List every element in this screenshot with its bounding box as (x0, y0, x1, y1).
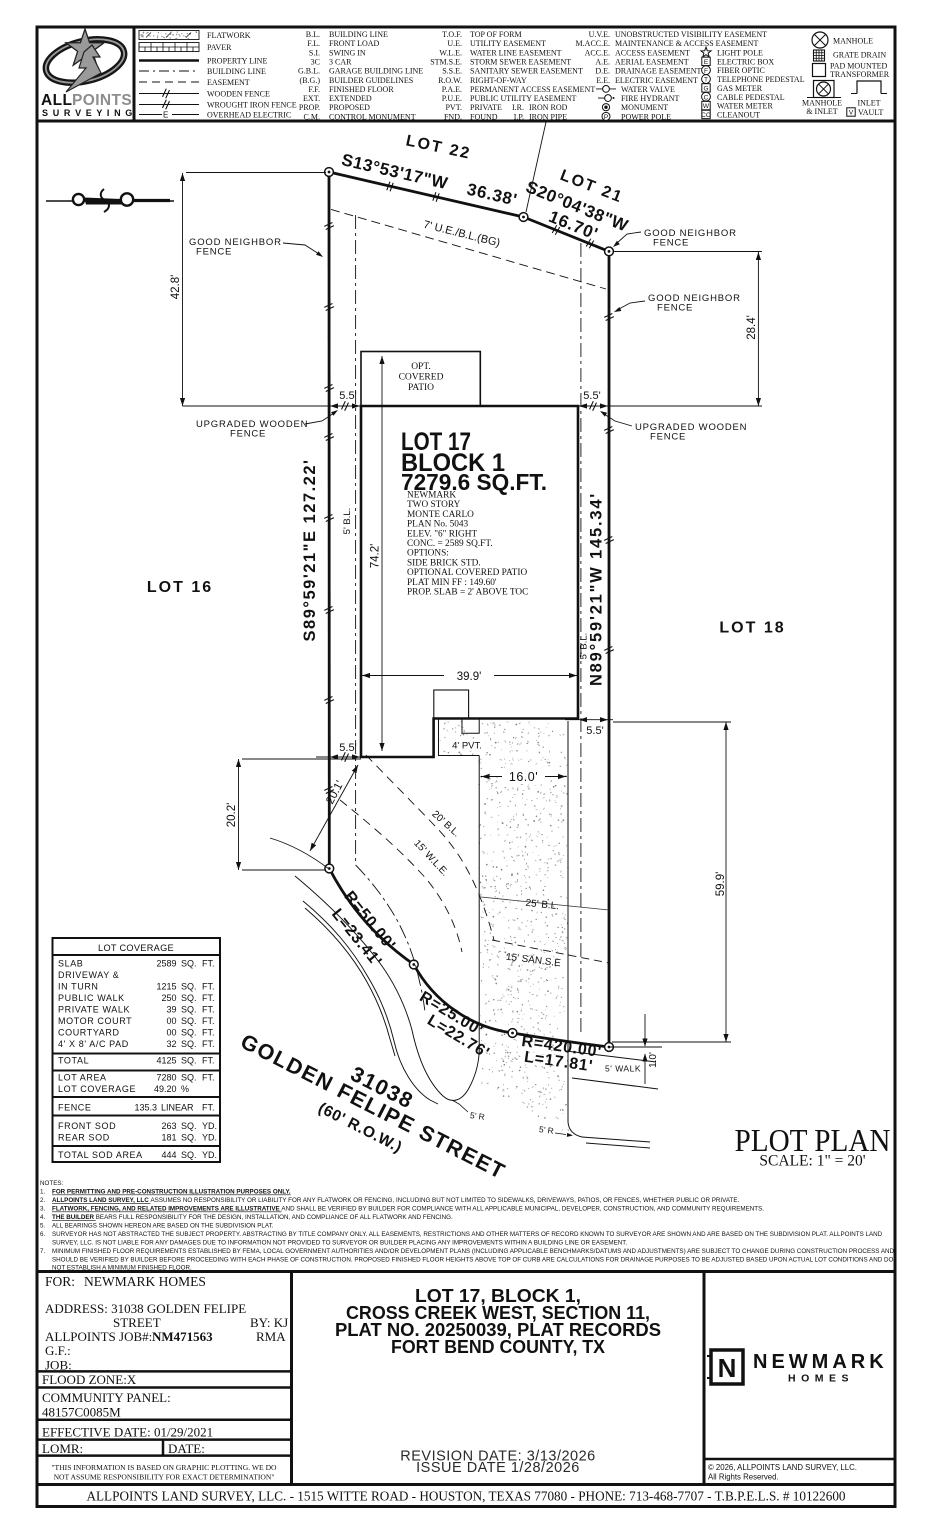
svg-text:FENCE: FENCE (196, 247, 232, 258)
svg-text:U.V.E.: U.V.E. (589, 30, 610, 39)
svg-text:IN TURN: IN TURN (58, 982, 99, 992)
svg-text:5.5': 5.5' (339, 390, 356, 402)
svg-text:ALLPOINTS LAND SURVEY, LLC. -: ALLPOINTS LAND SURVEY, LLC. - 1515 WITTE… (86, 1489, 845, 1504)
svg-text:PLAT MIN FF : 149.60': PLAT MIN FF : 149.60' (407, 578, 497, 588)
svg-text:C: C (704, 94, 709, 101)
svg-text:16.0': 16.0' (509, 770, 538, 784)
svg-text:BUILDING LINE: BUILDING LINE (207, 67, 266, 76)
svg-text:EASEMENT: EASEMENT (207, 78, 250, 87)
svg-text:49.20: 49.20 (154, 1084, 177, 1094)
svg-text:STM.S.E.: STM.S.E. (430, 57, 462, 66)
svg-text:ALL: ALL (41, 92, 72, 109)
svg-text:PUBLIC WALK: PUBLIC WALK (58, 993, 125, 1003)
svg-text:UNOBSTRUCTED VISIBILITY EASEME: UNOBSTRUCTED VISIBILITY EASEMENT (615, 30, 767, 39)
svg-text:CABLE PEDESTAL: CABLE PEDESTAL (717, 93, 785, 102)
svg-text:BUILDER GUIDELINES: BUILDER GUIDELINES (329, 76, 413, 85)
svg-text:48157C0085M: 48157C0085M (42, 1405, 121, 1420)
svg-text:I.P.: I.P. (514, 112, 524, 121)
svg-text:WATER LINE EASEMENT: WATER LINE EASEMENT (470, 48, 562, 57)
svg-text:LOT 18: LOT 18 (719, 620, 785, 637)
svg-text:4' X 8' A/C PAD: 4' X 8' A/C PAD (58, 1039, 129, 1049)
svg-text:FT.: FT. (202, 1016, 215, 1026)
svg-text:EXT.: EXT. (303, 94, 320, 103)
svg-text:7' U.E./B.L.(BG): 7' U.E./B.L.(BG) (422, 219, 501, 250)
svg-text:444: 444 (161, 1150, 176, 1160)
svg-text:TOTAL SOD AREA: TOTAL SOD AREA (58, 1150, 143, 1160)
svg-text:GRATE DRAIN: GRATE DRAIN (833, 51, 886, 60)
svg-text:LOT COVERAGE: LOT COVERAGE (58, 1084, 136, 1094)
svg-text:SCALE: 1" = 20': SCALE: 1" = 20' (759, 1153, 865, 1170)
svg-text:U.E.: U.E. (447, 39, 462, 48)
svg-text:74.2': 74.2' (370, 544, 382, 569)
svg-text:5' R: 5' R (538, 1124, 554, 1136)
svg-text:DRIVEWAY &: DRIVEWAY & (58, 970, 119, 980)
svg-text:All Rights Reserved.: All Rights Reserved. (708, 1473, 779, 1482)
svg-text:PRIVATE WALK: PRIVATE WALK (58, 1005, 130, 1015)
svg-text:GAS METER: GAS METER (717, 84, 763, 93)
svg-text:FT.: FT. (202, 1028, 215, 1038)
svg-text:W.L.E.: W.L.E. (439, 48, 462, 57)
svg-text:S U R V E Y I N G: S U R V E Y I N G (42, 108, 133, 118)
svg-text:1.: 1. (40, 1189, 45, 1196)
svg-text:FND.: FND. (444, 112, 462, 121)
svg-text:WROUGHT IRON FENCE: WROUGHT IRON FENCE (207, 101, 297, 110)
svg-text:FENCE: FENCE (657, 303, 693, 314)
svg-text:FT.: FT. (202, 1005, 215, 1015)
svg-text:32: 32 (166, 1039, 176, 1049)
svg-text:7280: 7280 (156, 1073, 176, 1083)
svg-text:P: P (604, 114, 608, 121)
svg-text:%: % (181, 1084, 189, 1094)
svg-text:FIRE HYDRANT: FIRE HYDRANT (621, 94, 680, 103)
svg-text:5.: 5. (40, 1223, 45, 1230)
svg-text:SQ.: SQ. (181, 1056, 197, 1066)
svg-text:FLOOD ZONE:X: FLOOD ZONE:X (42, 1372, 137, 1387)
svg-text:3C: 3C (311, 57, 320, 66)
svg-text:F.L.: F.L. (307, 39, 320, 48)
svg-text:E: E (163, 111, 168, 120)
svg-text:SQ.: SQ. (181, 1121, 197, 1131)
svg-text:59.9': 59.9' (715, 872, 727, 897)
svg-text:1215: 1215 (156, 982, 176, 992)
svg-text:25' B.L.: 25' B.L. (525, 898, 560, 912)
svg-text:S89°59'21"E 127.22': S89°59'21"E 127.22' (301, 459, 319, 642)
svg-text:TWO STORY: TWO STORY (407, 500, 461, 510)
svg-text:1.0': 1.0' (648, 1052, 659, 1068)
svg-text:4125: 4125 (156, 1056, 176, 1066)
svg-text:CONTROL MONUMENT: CONTROL MONUMENT (329, 112, 416, 121)
svg-text:SQ.: SQ. (181, 1005, 197, 1015)
svg-text:CONC. = 2589 SQ.FT.: CONC. = 2589 SQ.FT. (407, 539, 493, 549)
svg-text:SIDE BRICK STD.: SIDE BRICK STD. (407, 558, 481, 568)
svg-text:WOODEN FENCE: WOODEN FENCE (207, 90, 270, 99)
svg-text:DATE:: DATE: (168, 1441, 205, 1456)
svg-text:FT.: FT. (202, 1073, 215, 1083)
svg-text:FLATWORK, FENCING, AND RELATED: FLATWORK, FENCING, AND RELATED IMPROVEME… (52, 1206, 764, 1213)
svg-text:181: 181 (161, 1133, 176, 1143)
svg-text:7.: 7. (40, 1248, 45, 1255)
svg-text:MONUMENT: MONUMENT (621, 103, 668, 112)
svg-text:IRON PIPE: IRON PIPE (529, 112, 567, 121)
svg-text:FINISHED FLOOR: FINISHED FLOOR (329, 85, 394, 94)
svg-text:STREET: STREET (113, 1315, 161, 1330)
svg-text:OPT.: OPT. (411, 362, 431, 372)
svg-text:EXTENDED: EXTENDED (329, 94, 372, 103)
svg-text:(B.G.): (B.G.) (300, 76, 321, 85)
svg-text:MOTOR COURT: MOTOR COURT (58, 1016, 132, 1026)
svg-text:OVERHEAD ELECTRIC: OVERHEAD ELECTRIC (207, 111, 291, 120)
svg-text:OPTIONS:: OPTIONS: (407, 549, 449, 559)
svg-text:NEWMARK HOMES: NEWMARK HOMES (84, 1274, 206, 1289)
svg-text:SANITARY SEWER EASEMENT: SANITARY SEWER EASEMENT (470, 67, 583, 76)
svg-text:REAR SOD: REAR SOD (58, 1133, 110, 1143)
svg-text:R.O.W.: R.O.W. (438, 76, 462, 85)
svg-text:RMA: RMA (256, 1329, 286, 1344)
svg-text:FENCE: FENCE (230, 429, 266, 440)
svg-text:IRON ROD: IRON ROD (529, 103, 568, 112)
svg-text:ALLPOINTS JOB#:: ALLPOINTS JOB#: (45, 1329, 152, 1344)
svg-text:5.5': 5.5' (586, 725, 603, 737)
svg-text:ELECTRIC EASEMENT: ELECTRIC EASEMENT (615, 76, 698, 85)
svg-text:WATER VALVE: WATER VALVE (621, 85, 675, 94)
svg-text:ALLPOINTS LAND SURVEY, LLC ASS: ALLPOINTS LAND SURVEY, LLC ASSUMES NO RE… (52, 1197, 740, 1204)
svg-text:PROPERTY LINE: PROPERTY LINE (207, 57, 267, 66)
svg-text:SQ.: SQ. (181, 959, 197, 969)
svg-text:DRAINAGE EASEMENT: DRAINAGE EASEMENT (615, 67, 702, 76)
svg-text:FOUND: FOUND (470, 112, 498, 121)
svg-text:MINIMUM FINISHED FLOOR REQUIRE: MINIMUM FINISHED FLOOR REQUIREMENTS ESTA… (52, 1248, 895, 1255)
svg-text:FORT BEND COUNTY, TX: FORT BEND COUNTY, TX (391, 1337, 605, 1357)
svg-text:LINEAR: LINEAR (161, 1103, 194, 1113)
svg-text:PUBLIC UTILITY EASEMENT: PUBLIC UTILITY EASEMENT (470, 94, 576, 103)
svg-text:ELEV. "6" RIGHT: ELEV. "6" RIGHT (407, 529, 477, 539)
svg-text:PERMANENT ACCESS EASEMENT: PERMANENT ACCESS EASEMENT (470, 85, 595, 94)
svg-text:ELECTRIC BOX: ELECTRIC BOX (717, 57, 774, 66)
svg-text:INLET: INLET (857, 99, 880, 108)
svg-text:T: T (704, 77, 708, 84)
svg-text:NEWMARK: NEWMARK (753, 1351, 888, 1373)
svg-text:20.2': 20.2' (226, 803, 238, 828)
svg-text:ISSUE DATE 1/28/2026: ISSUE DATE 1/28/2026 (416, 1460, 580, 1476)
svg-text:F.F.: F.F. (308, 85, 320, 94)
svg-text:00: 00 (166, 1028, 176, 1038)
svg-text:SQ.: SQ. (181, 1073, 197, 1083)
svg-text:FENCE: FENCE (58, 1103, 92, 1113)
svg-text:& INLET: & INLET (806, 107, 837, 116)
svg-text:N89°59'21"W 145.34': N89°59'21"W 145.34' (588, 492, 606, 686)
svg-text:LOT COVERAGE: LOT COVERAGE (98, 943, 174, 953)
svg-text:3.: 3. (40, 1206, 45, 1213)
svg-text:LOT AREA: LOT AREA (58, 1073, 107, 1083)
svg-text:UTILITY EASEMENT: UTILITY EASEMENT (470, 39, 546, 48)
svg-text:FT.: FT. (202, 959, 215, 969)
svg-text:FOR:: FOR: (45, 1274, 75, 1289)
svg-text:FT.: FT. (202, 993, 215, 1003)
svg-text:CO: CO (701, 112, 711, 119)
svg-text:E.E.: E.E. (596, 76, 610, 85)
svg-text:PATIO: PATIO (408, 383, 434, 393)
svg-text:SQ.: SQ. (181, 1150, 197, 1160)
svg-text:LOT 22: LOT 22 (404, 132, 472, 162)
svg-text:OPTIONAL COVERED PATIO: OPTIONAL COVERED PATIO (407, 568, 527, 578)
svg-text:P.U.E.: P.U.E. (442, 94, 462, 103)
svg-text:FT.: FT. (202, 1056, 215, 1066)
svg-text:C.M.: C.M. (304, 112, 320, 121)
svg-text:G.B.L.: G.B.L. (298, 67, 320, 76)
svg-text:NOTES:: NOTES: (40, 1180, 64, 1187)
svg-text:PAVER: PAVER (207, 43, 232, 52)
svg-text:FT.: FT. (202, 1039, 215, 1049)
svg-text:BY: KJ: BY: KJ (250, 1315, 288, 1330)
svg-text:FRONT LOAD: FRONT LOAD (329, 39, 380, 48)
svg-text:CLEANOUT: CLEANOUT (717, 110, 760, 119)
svg-text:MAINTENANCE & ACCESS EASEMENT: MAINTENANCE & ACCESS EASEMENT (615, 39, 758, 48)
svg-text:42.8': 42.8' (170, 275, 182, 300)
svg-text:M.ACC.E.: M.ACC.E. (576, 39, 610, 48)
svg-text:SQ.: SQ. (181, 1028, 197, 1038)
svg-text:135.3: 135.3 (134, 1103, 157, 1113)
svg-text:N: N (718, 1353, 737, 1383)
svg-text:JOB:: JOB: (45, 1358, 72, 1373)
svg-text:POWER POLE: POWER POLE (621, 112, 671, 121)
svg-text:COURTYARD: COURTYARD (58, 1028, 120, 1038)
svg-text:NEWMARK: NEWMARK (407, 491, 456, 501)
svg-text:YD.: YD. (202, 1121, 217, 1131)
svg-text:TOP OF FORM: TOP OF FORM (470, 30, 522, 39)
svg-text:F: F (704, 68, 708, 75)
svg-text:FIBER OPTIC: FIBER OPTIC (717, 66, 765, 75)
svg-text:PVT.: PVT. (445, 103, 462, 112)
svg-text:MANHOLE: MANHOLE (833, 37, 873, 46)
svg-text:FENCE: FENCE (650, 432, 686, 443)
svg-text:3 CAR: 3 CAR (329, 57, 352, 66)
svg-text:I.R.: I.R. (512, 103, 524, 112)
svg-text:COMMUNITY PANEL:: COMMUNITY PANEL: (42, 1390, 171, 1405)
svg-text:SQ.: SQ. (181, 1016, 197, 1026)
svg-text:GARAGE BUILDING LINE: GARAGE BUILDING LINE (329, 67, 423, 76)
svg-text:39.9': 39.9' (457, 671, 482, 683)
svg-text:TELEPHONE PEDESTAL: TELEPHONE PEDESTAL (717, 75, 805, 84)
svg-text:A.E.: A.E. (595, 57, 610, 66)
svg-text:NOT ASSUME RESPONSIBILITY FOR: NOT ASSUME RESPONSIBILITY FOR EXACT DETE… (54, 1473, 275, 1482)
svg-text:5' WALK: 5' WALK (605, 1064, 641, 1074)
svg-text:SQ.: SQ. (181, 993, 197, 1003)
svg-text:5.5': 5.5' (339, 742, 356, 754)
svg-text:"THIS INFORMATION IS BASED ON: "THIS INFORMATION IS BASED ON GRAPHIC PL… (51, 1463, 277, 1472)
svg-text:ADDRESS: 31038 GOLDEN FELIPE: ADDRESS: 31038 GOLDEN FELIPE (45, 1301, 246, 1316)
svg-text:G: G (703, 86, 708, 93)
svg-text:5' B.L.: 5' B.L. (342, 508, 353, 535)
svg-text:LIGHT POLE: LIGHT POLE (717, 49, 763, 58)
svg-text:2589: 2589 (156, 959, 176, 969)
svg-text:4' PVT.: 4' PVT. (452, 741, 482, 752)
svg-text:S.I.: S.I. (309, 48, 320, 57)
svg-text:263: 263 (161, 1121, 176, 1131)
svg-text:W: W (703, 103, 710, 110)
svg-text:YD.: YD. (202, 1150, 217, 1160)
svg-text:BUILDING LINE: BUILDING LINE (329, 30, 388, 39)
svg-text:VAULT: VAULT (858, 108, 883, 117)
svg-text:G.F.:: G.F.: (45, 1343, 71, 1358)
svg-text:LOT 16: LOT 16 (147, 579, 213, 596)
svg-text:SURVEYOR HAS NOT ABSTRACTED TH: SURVEYOR HAS NOT ABSTRACTED THE SUBJECT … (52, 1231, 883, 1238)
svg-text:2.: 2. (40, 1197, 45, 1204)
svg-text:FRONT SOD: FRONT SOD (58, 1121, 116, 1131)
svg-text:T.O.F.: T.O.F. (442, 30, 462, 39)
svg-text:© 2026, ALLPOINTS LAND SURVEY,: © 2026, ALLPOINTS LAND SURVEY, LLC. (708, 1463, 857, 1472)
svg-text:ACC.E.: ACC.E. (585, 48, 610, 57)
svg-text:SURVEY, LLC. IS NOT LIABLE FOR: SURVEY, LLC. IS NOT LIABLE FOR ANY DAMAG… (52, 1240, 627, 1247)
svg-text:39: 39 (166, 1005, 176, 1015)
svg-text:SQ.: SQ. (181, 1133, 197, 1143)
svg-text:P.A.E.: P.A.E. (442, 85, 462, 94)
svg-text:THE BUILDER BEARS FULL RESPONS: THE BUILDER BEARS FULL RESPONSIBILITY FO… (52, 1214, 453, 1221)
svg-text:B.L.: B.L. (306, 30, 320, 39)
svg-text:FLATWORK: FLATWORK (207, 31, 251, 40)
svg-text:SQ.: SQ. (181, 982, 197, 992)
svg-text:MONTE CARLO: MONTE CARLO (407, 510, 474, 520)
svg-text:FOR PERMITTING AND PRE-CONSTRU: FOR PERMITTING AND PRE-CONSTRUCTION ILLU… (52, 1189, 291, 1196)
svg-text:5' R: 5' R (469, 1110, 485, 1122)
svg-text:PLAN No. 5043: PLAN No. 5043 (407, 520, 469, 530)
svg-text:WATER METER: WATER METER (717, 102, 773, 111)
svg-text:SLAB: SLAB (58, 959, 83, 969)
svg-text:ACCESS EASEMENT: ACCESS EASEMENT (615, 48, 690, 57)
svg-text:RIGHT-OF-WAY: RIGHT-OF-WAY (470, 76, 527, 85)
svg-text:00: 00 (166, 1016, 176, 1026)
svg-text:PROPOSED: PROPOSED (329, 103, 370, 112)
svg-text:TOTAL: TOTAL (58, 1056, 89, 1066)
svg-text:LOMR:: LOMR: (42, 1441, 83, 1456)
svg-text:STORM SEWER EASEMENT: STORM SEWER EASEMENT (470, 57, 571, 66)
svg-text:PROP. SLAB = 2' ABOVE TOC: PROP. SLAB = 2' ABOVE TOC (407, 588, 528, 598)
svg-text:6.: 6. (40, 1231, 45, 1238)
svg-text:SWING IN: SWING IN (329, 48, 366, 57)
svg-text:15' W.L.E.: 15' W.L.E. (411, 838, 450, 879)
svg-text:EFFECTIVE DATE: 01/29/2021: EFFECTIVE DATE: 01/29/2021 (42, 1425, 213, 1440)
svg-text:E: E (704, 59, 709, 66)
svg-text:5.5': 5.5' (583, 390, 600, 402)
svg-text:SHOULD BE VERIFIED BY BUILDER: SHOULD BE VERIFIED BY BUILDER BEFORE PRO… (52, 1257, 893, 1264)
svg-text:PRIVATE: PRIVATE (470, 103, 502, 112)
svg-text:28.4': 28.4' (746, 315, 758, 340)
svg-text:S.S.E.: S.S.E. (442, 67, 462, 76)
svg-text:NM471563: NM471563 (152, 1329, 213, 1344)
svg-text:SQ.: SQ. (181, 1039, 197, 1049)
svg-text:TRANSFORMER: TRANSFORMER (830, 70, 890, 79)
svg-text:4.: 4. (40, 1214, 45, 1221)
svg-text:HOMES: HOMES (788, 1373, 854, 1385)
svg-text:COVERED: COVERED (399, 373, 444, 383)
svg-text:POINTS: POINTS (72, 92, 132, 109)
svg-text:ALL BEARINGS SHOWN HEREON ARE: ALL BEARINGS SHOWN HEREON ARE BASED ON T… (52, 1223, 274, 1230)
svg-text:D.E.: D.E. (595, 67, 610, 76)
svg-text:YD.: YD. (202, 1133, 217, 1143)
svg-text:FT.: FT. (202, 1103, 215, 1113)
svg-text:FENCE: FENCE (653, 238, 689, 249)
svg-text:AERIAL EASEMENT: AERIAL EASEMENT (615, 57, 689, 66)
svg-text:15' SAN.S.E: 15' SAN.S.E (505, 952, 562, 970)
svg-text:20' B.L.: 20' B.L. (430, 809, 462, 840)
svg-text:FT.: FT. (202, 982, 215, 992)
svg-text:250: 250 (161, 993, 176, 1003)
svg-text:5' B.L.: 5' B.L. (579, 633, 590, 660)
svg-text:V: V (849, 110, 854, 117)
svg-text:PROP.: PROP. (299, 103, 320, 112)
